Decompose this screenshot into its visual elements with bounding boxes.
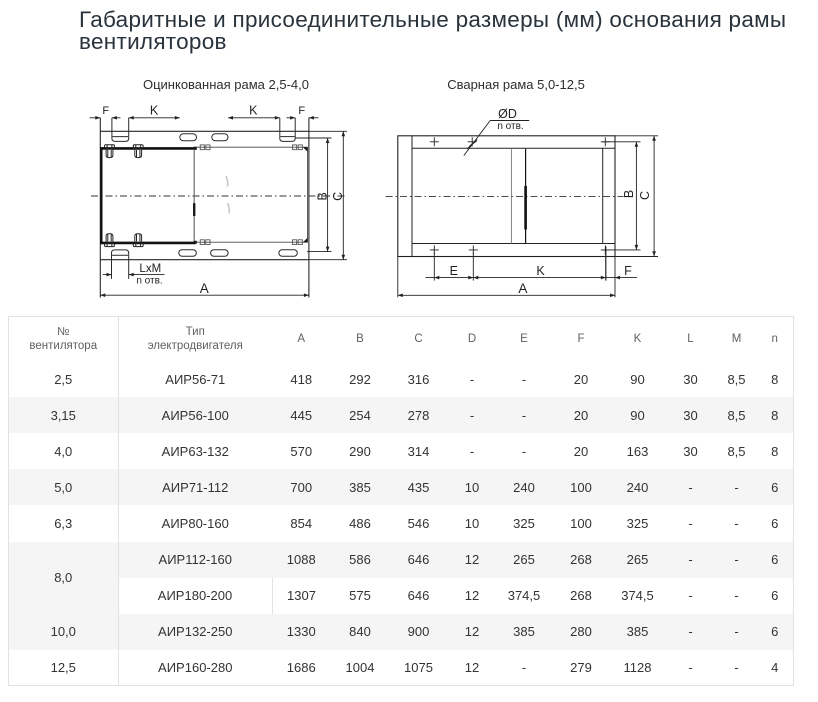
svg-text:B: B (315, 192, 329, 200)
svg-text:F: F (624, 264, 632, 278)
svg-text:ØD: ØD (498, 107, 517, 121)
svg-text:Оцинкованная рама 2,5-4,0: Оцинкованная рама 2,5-4,0 (143, 77, 309, 92)
svg-text:B: B (622, 190, 636, 198)
svg-text:K: K (150, 103, 159, 117)
svg-text:LxM: LxM (139, 263, 161, 275)
svg-text:C: C (331, 192, 345, 201)
svg-text:A: A (200, 281, 209, 296)
svg-text:n отв.: n отв. (136, 276, 162, 287)
svg-text:E: E (450, 264, 458, 278)
svg-text:A: A (518, 281, 527, 296)
svg-text:K: K (536, 264, 545, 278)
svg-text:K: K (249, 103, 258, 117)
svg-text:Сварная рама 5,0-12,5: Сварная рама 5,0-12,5 (447, 77, 585, 92)
svg-text:F: F (298, 105, 305, 117)
svg-text:n отв.: n отв. (497, 121, 523, 132)
svg-text:F: F (102, 105, 109, 117)
svg-text:C: C (638, 191, 652, 200)
